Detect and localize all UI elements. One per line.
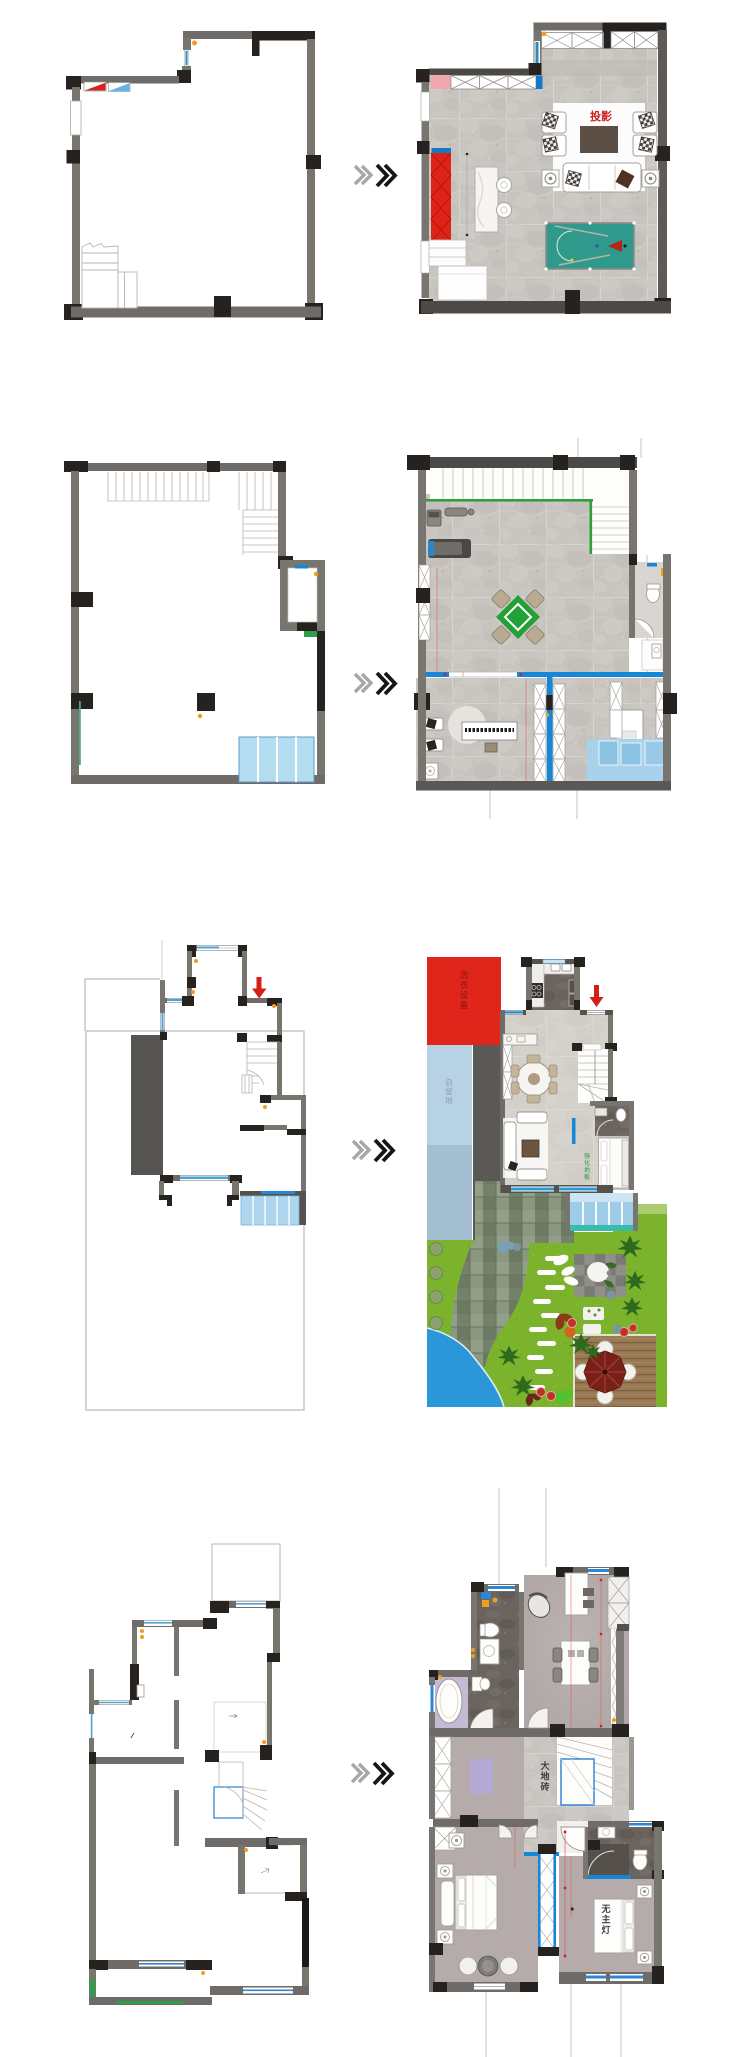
svg-text:无主灯: 无主灯: [600, 1904, 610, 1935]
svg-text:洗衣设备: 洗衣设备: [460, 970, 469, 1010]
svg-text:大地砖: 大地砖: [540, 1760, 549, 1792]
svg-text:自留地: 自留地: [445, 1077, 453, 1105]
svg-text:投影: 投影: [590, 109, 612, 123]
